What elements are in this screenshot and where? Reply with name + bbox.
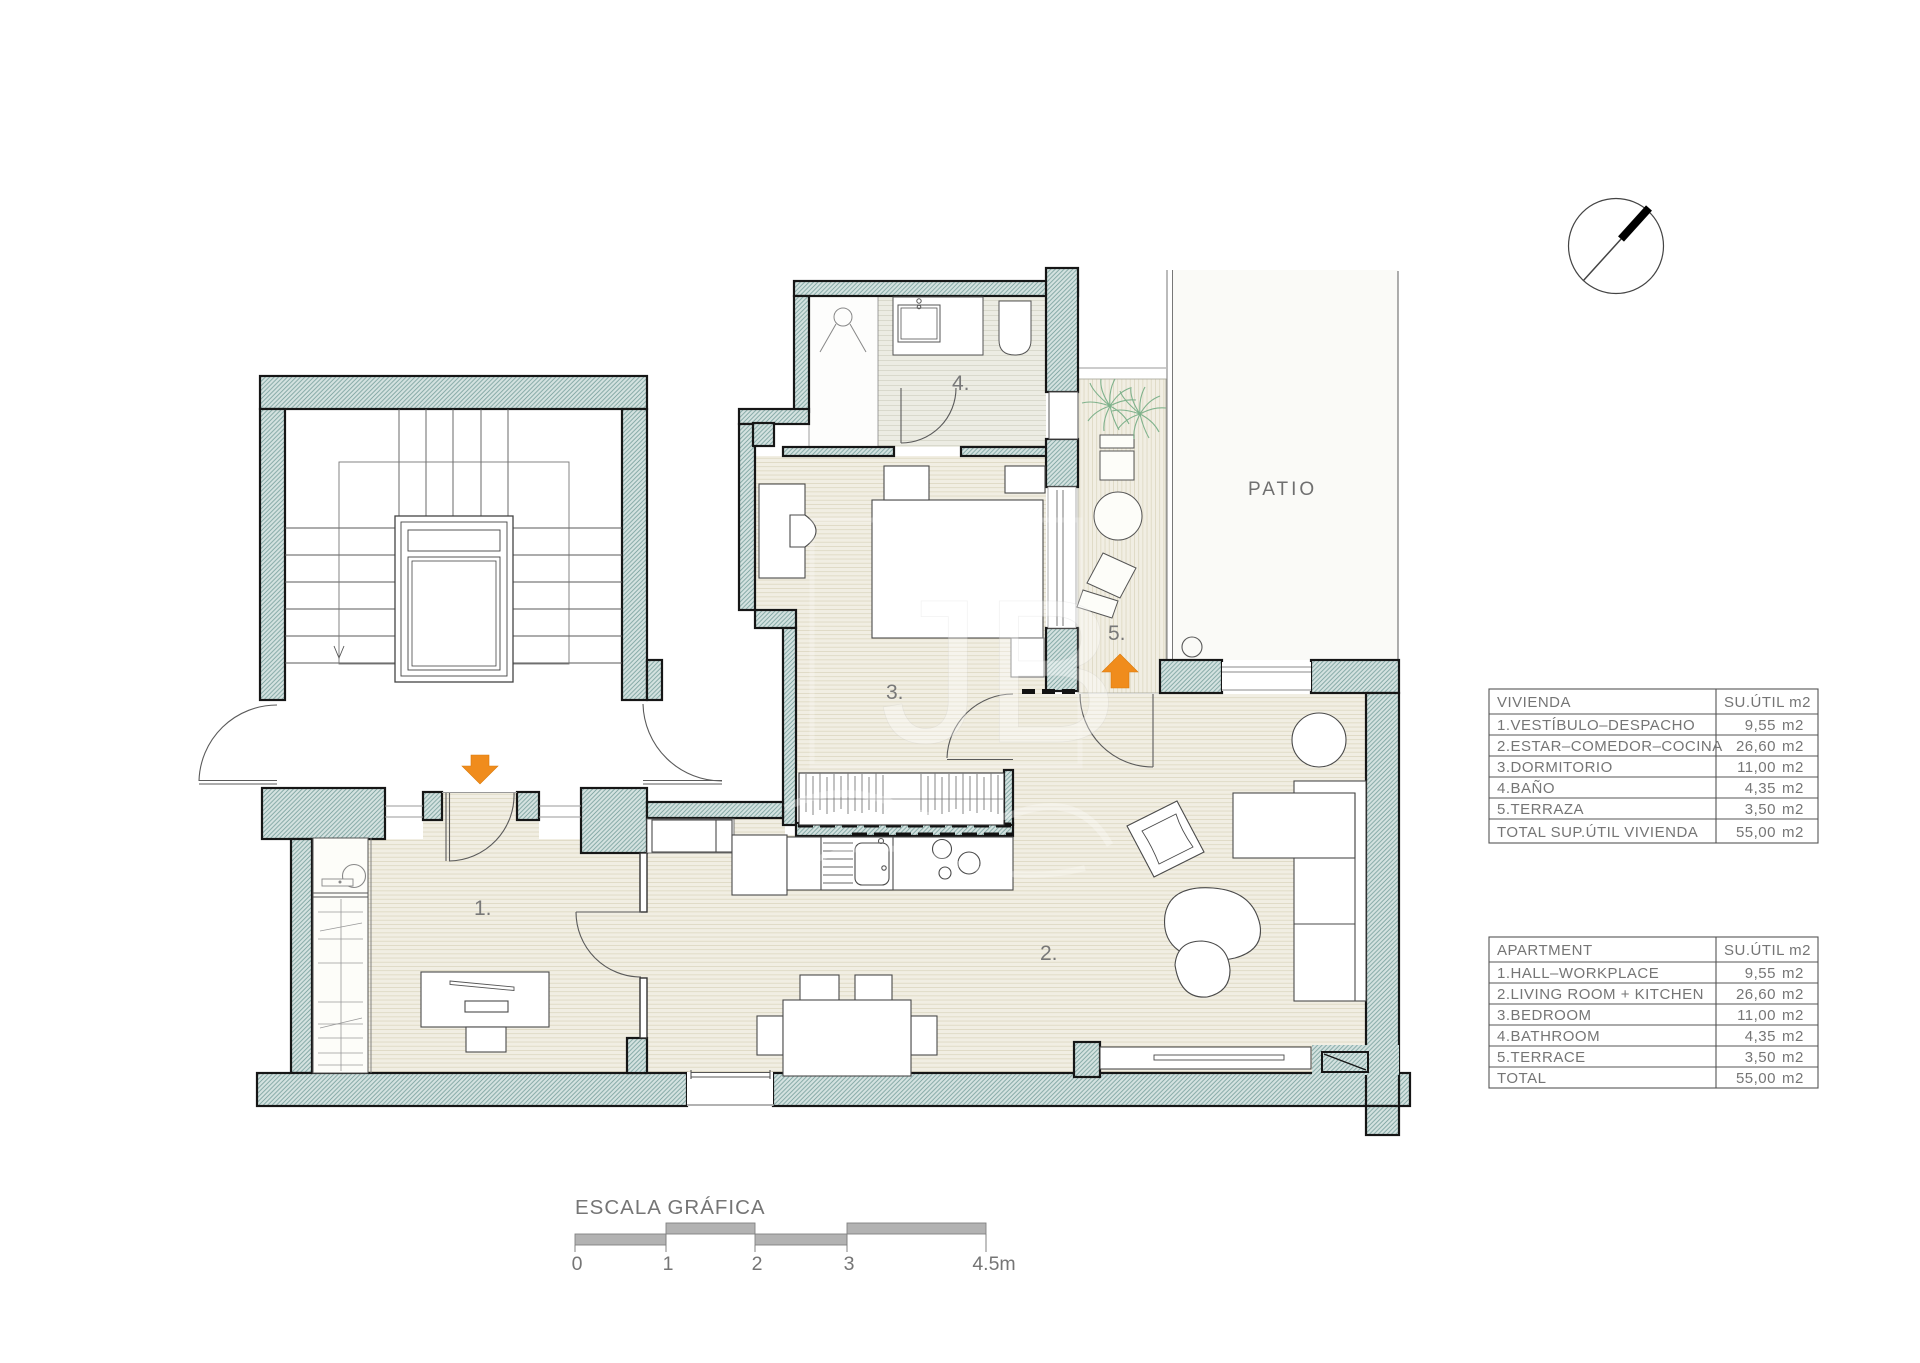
svg-text:3: 3 xyxy=(844,1253,855,1275)
svg-text:m2: m2 xyxy=(1782,1007,1804,1024)
svg-text:3,50: 3,50 xyxy=(1745,801,1776,818)
svg-text:2.ESTAR–COMEDOR–COCINA: 2.ESTAR–COMEDOR–COCINA xyxy=(1497,738,1723,755)
svg-text:11,00: 11,00 xyxy=(1737,759,1776,776)
svg-text:VIVIENDA: VIVIENDA xyxy=(1497,694,1571,711)
svg-text:5.TERRAZA: 5.TERRAZA xyxy=(1497,801,1584,818)
svg-text:m2: m2 xyxy=(1782,1070,1804,1087)
svg-text:55,00: 55,00 xyxy=(1736,1070,1776,1087)
svg-text:3.DORMITORIO: 3.DORMITORIO xyxy=(1497,759,1613,776)
svg-text:JB: JB xyxy=(880,557,1119,786)
svg-text:m2: m2 xyxy=(1782,801,1804,818)
svg-text:1.HALL–WORKPLACE: 1.HALL–WORKPLACE xyxy=(1497,965,1659,982)
svg-text:m2: m2 xyxy=(1782,1049,1804,1066)
svg-text:m2: m2 xyxy=(1782,986,1804,1003)
svg-text:26,60: 26,60 xyxy=(1736,738,1776,755)
svg-text:m2: m2 xyxy=(1782,780,1804,797)
svg-text:m2: m2 xyxy=(1782,759,1804,776)
svg-text:APARTMENT: APARTMENT xyxy=(1497,942,1593,959)
svg-text:ESCALA GRÁFICA: ESCALA GRÁFICA xyxy=(575,1196,766,1219)
svg-text:9,55: 9,55 xyxy=(1745,965,1776,982)
svg-text:m2: m2 xyxy=(1782,965,1804,982)
svg-text:3.BEDROOM: 3.BEDROOM xyxy=(1497,1007,1592,1024)
svg-text:1: 1 xyxy=(663,1253,674,1275)
svg-text:4.5m: 4.5m xyxy=(972,1253,1015,1275)
svg-text:m2: m2 xyxy=(1782,717,1804,734)
svg-text:m2: m2 xyxy=(1782,824,1804,841)
svg-text:4,35: 4,35 xyxy=(1745,1028,1776,1045)
svg-text:55,00: 55,00 xyxy=(1736,824,1776,841)
svg-text:2.: 2. xyxy=(1040,942,1058,965)
svg-text:SU.ÚTIL m2: SU.ÚTIL m2 xyxy=(1724,942,1811,959)
svg-text:SU.ÚTIL m2: SU.ÚTIL m2 xyxy=(1724,694,1811,711)
svg-text:TOTAL SUP.ÚTIL VIVIENDA: TOTAL SUP.ÚTIL VIVIENDA xyxy=(1497,824,1698,841)
svg-text:4.: 4. xyxy=(952,372,970,395)
svg-text:26,60: 26,60 xyxy=(1736,986,1776,1003)
svg-text:2: 2 xyxy=(752,1253,763,1275)
svg-text:5.TERRACE: 5.TERRACE xyxy=(1497,1049,1586,1066)
svg-text:2.LIVING ROOM + KITCHEN: 2.LIVING ROOM + KITCHEN xyxy=(1497,986,1704,1003)
svg-text:4,35: 4,35 xyxy=(1745,780,1776,797)
svg-text:TOTAL: TOTAL xyxy=(1497,1070,1546,1087)
svg-text:1.: 1. xyxy=(474,897,492,920)
svg-text:4.BATHROOM: 4.BATHROOM xyxy=(1497,1028,1600,1045)
svg-text:4.BAÑO: 4.BAÑO xyxy=(1497,780,1555,797)
svg-text:0: 0 xyxy=(572,1253,583,1275)
svg-text:9,55: 9,55 xyxy=(1745,717,1776,734)
svg-text:PATIO: PATIO xyxy=(1248,479,1317,500)
svg-text:11,00: 11,00 xyxy=(1737,1007,1776,1024)
svg-text:1.VESTÍBULO–DESPACHO: 1.VESTÍBULO–DESPACHO xyxy=(1497,717,1695,734)
svg-text:m2: m2 xyxy=(1782,1028,1804,1045)
svg-text:m2: m2 xyxy=(1782,738,1804,755)
svg-text:3,50: 3,50 xyxy=(1745,1049,1776,1066)
